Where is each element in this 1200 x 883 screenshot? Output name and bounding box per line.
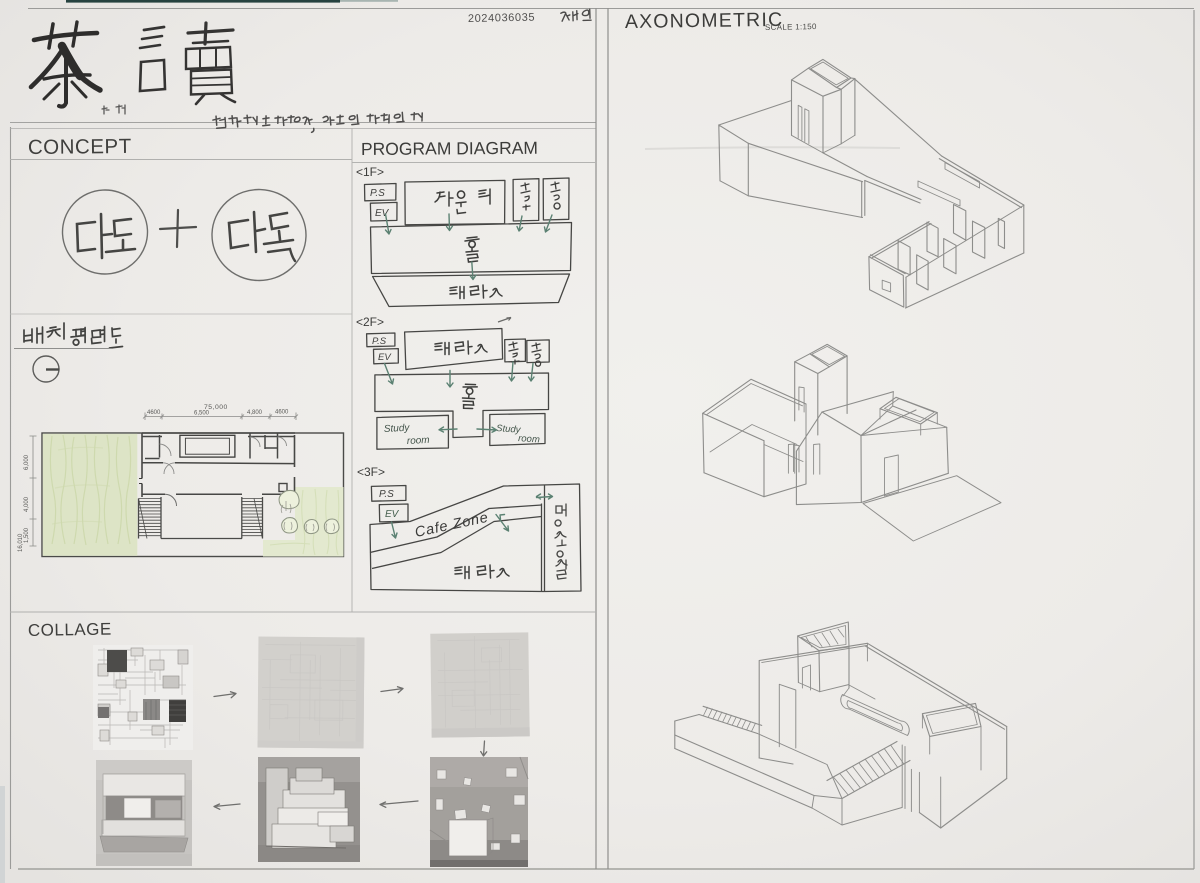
svg-text:room: room: [518, 433, 540, 445]
svg-text:4,800: 4,800: [247, 410, 263, 416]
svg-text:4600: 4600: [147, 410, 161, 416]
svg-text:P.S: P.S: [372, 336, 387, 347]
svg-text:P.S: P.S: [370, 188, 385, 199]
svg-text:<2F>: <2F>: [356, 315, 384, 329]
svg-text:CONCEPT: CONCEPT: [28, 135, 132, 159]
svg-text:4600: 4600: [275, 410, 289, 416]
svg-text:COLLAGE: COLLAGE: [28, 620, 112, 640]
svg-text:<1F>: <1F>: [356, 165, 384, 179]
svg-text:P.S: P.S: [379, 489, 394, 500]
svg-text:SCALE 1:150: SCALE 1:150: [765, 22, 817, 32]
svg-text:room: room: [407, 435, 430, 447]
svg-text:EV: EV: [375, 208, 390, 219]
svg-text:Study: Study: [384, 423, 411, 435]
svg-text:16,010: 16,010: [18, 533, 24, 552]
svg-text:EV: EV: [378, 352, 392, 363]
svg-text:EV: EV: [385, 509, 400, 520]
svg-text:6,000: 6,000: [24, 454, 30, 470]
svg-text:1,500: 1,500: [24, 527, 30, 543]
svg-text:<3F>: <3F>: [357, 465, 385, 479]
svg-text:AXONOMETRIC: AXONOMETRIC: [625, 9, 784, 33]
svg-text:PROGRAM DIAGRAM: PROGRAM DIAGRAM: [361, 138, 538, 159]
svg-text:2024036035: 2024036035: [468, 12, 535, 25]
svg-text:6,500: 6,500: [194, 411, 210, 417]
svg-text:4,000: 4,000: [24, 496, 30, 512]
